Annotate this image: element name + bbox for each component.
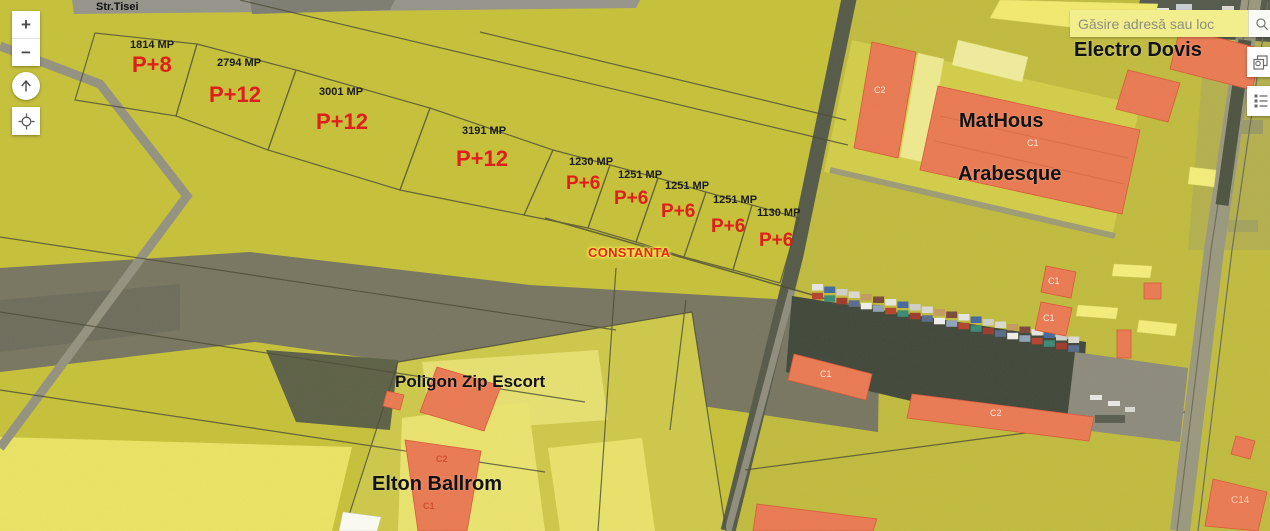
map-canvas[interactable]: Str.Tisei 1814 MP P+8 2794 MP P+12 3001 … (0, 0, 1270, 531)
search-input[interactable] (1070, 10, 1248, 37)
zoom-in-button[interactable]: + (12, 11, 40, 38)
compass-reset-north-button[interactable] (12, 72, 40, 100)
search-icon (1255, 16, 1269, 32)
basemap-layers-icon (1252, 54, 1269, 71)
locate-me-button[interactable] (12, 107, 40, 135)
search-button[interactable] (1248, 10, 1270, 37)
legend-list-icon (1253, 93, 1269, 109)
zoom-control-group: + − (12, 11, 40, 66)
north-arrow-icon (18, 78, 34, 94)
locate-crosshair-icon (18, 113, 35, 130)
zoom-out-button[interactable]: − (12, 38, 40, 66)
search-bar (1070, 10, 1270, 37)
legend-button[interactable] (1247, 86, 1270, 116)
aerial-grain (0, 0, 1270, 531)
basemap-gallery-button[interactable] (1247, 47, 1270, 77)
map-artwork (0, 0, 1270, 531)
